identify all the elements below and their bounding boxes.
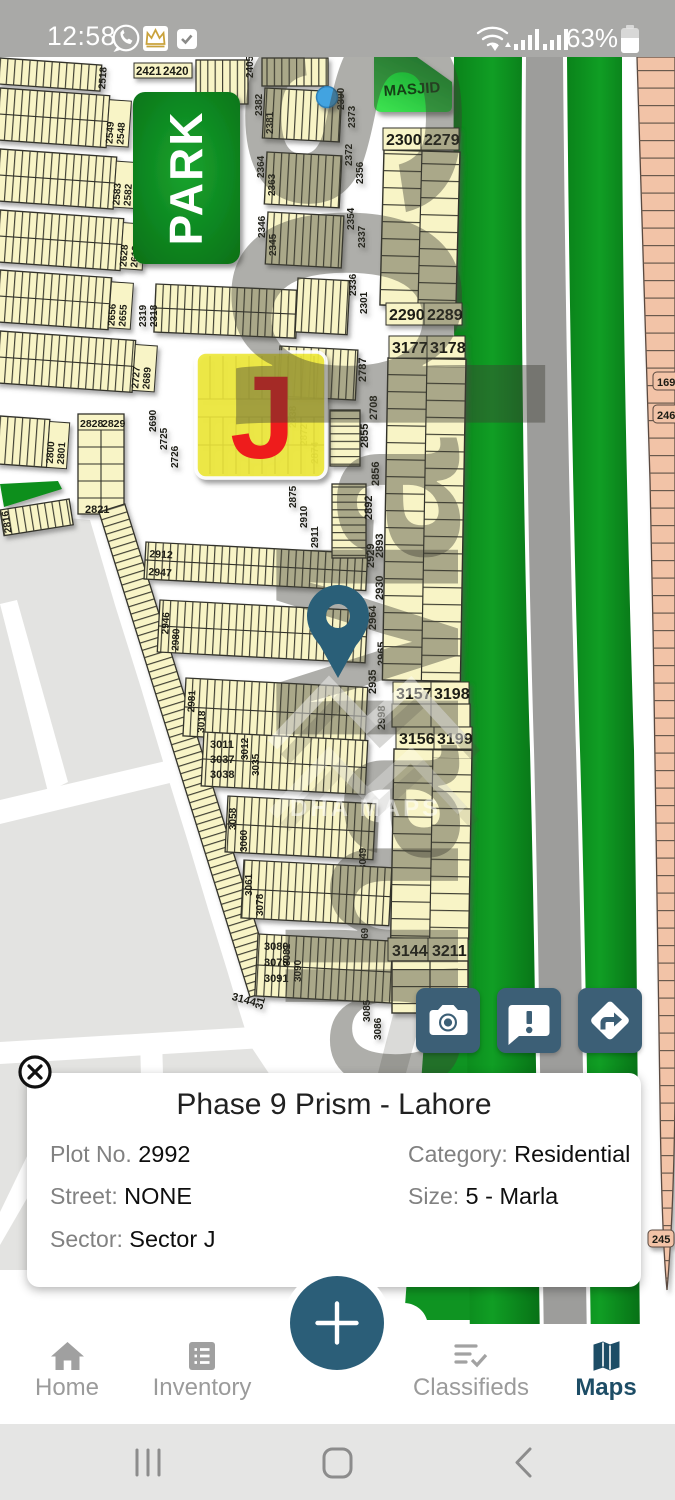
svg-text:3035: 3035: [251, 753, 262, 776]
svg-text:3018: 3018: [196, 710, 208, 733]
svg-text:3058: 3058: [228, 807, 239, 830]
svg-text:DHA MAPS: DHA MAPS: [290, 795, 441, 822]
svg-text:2821: 2821: [85, 504, 109, 516]
svg-text:169: 169: [657, 377, 675, 389]
svg-text:3038: 3038: [210, 769, 234, 781]
svg-text:2912: 2912: [149, 548, 173, 561]
svg-text:3037: 3037: [210, 754, 234, 766]
svg-text:245: 245: [652, 1234, 670, 1246]
svg-text:2947: 2947: [148, 566, 172, 579]
svg-text:2801: 2801: [56, 441, 69, 464]
svg-text:p: p: [79, 195, 550, 452]
svg-text:2981: 2981: [186, 689, 198, 712]
svg-text:246: 246: [657, 410, 675, 422]
svg-text:2980: 2980: [170, 628, 182, 651]
